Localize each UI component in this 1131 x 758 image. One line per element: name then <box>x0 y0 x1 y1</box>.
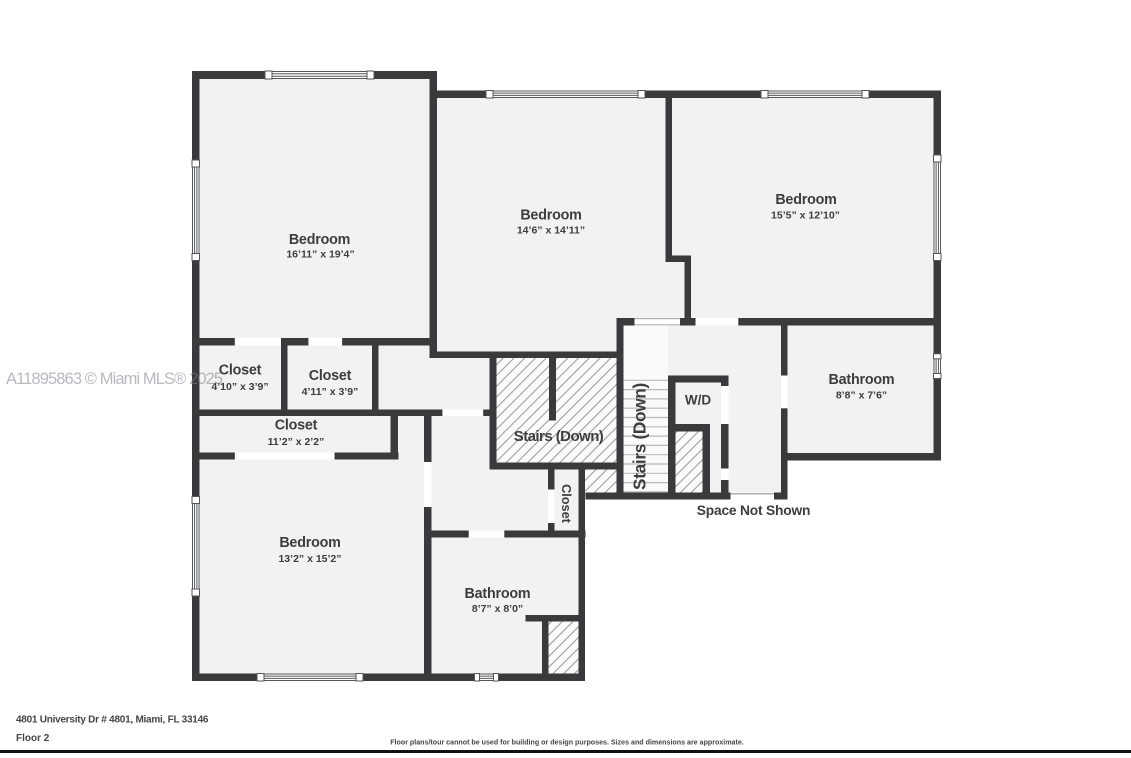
svg-text:11’2” x 2’2”: 11’2” x 2’2” <box>268 436 325 448</box>
svg-text:15’5” x 12’10”: 15’5” x 12’10” <box>771 210 840 222</box>
svg-text:A11895863 © Miami MLS® 2025: A11895863 © Miami MLS® 2025 <box>6 370 223 388</box>
svg-text:16’11” x 19’4”: 16’11” x 19’4” <box>286 249 354 261</box>
svg-text:Floor plans/tour cannot be use: Floor plans/tour cannot be used for buil… <box>390 739 744 747</box>
svg-text:14’6” x 14’11”: 14’6” x 14’11” <box>517 225 585 237</box>
svg-text:Closet: Closet <box>275 418 318 434</box>
svg-text:Bedroom: Bedroom <box>289 232 350 248</box>
svg-text:4801 University Dr # 4801, Mia: 4801 University Dr # 4801, Miami, FL 331… <box>16 715 209 726</box>
svg-text:Closet: Closet <box>219 363 262 379</box>
svg-text:4’11” x 3’9”: 4’11” x 3’9” <box>302 386 359 398</box>
svg-text:Bedroom: Bedroom <box>520 208 581 224</box>
svg-text:Bedroom: Bedroom <box>775 192 836 208</box>
svg-text:Stairs (Down): Stairs (Down) <box>630 383 650 490</box>
svg-text:Space Not Shown: Space Not Shown <box>697 503 811 518</box>
svg-text:Bedroom: Bedroom <box>279 535 340 551</box>
svg-text:Floor 2: Floor 2 <box>16 733 50 744</box>
svg-text:W/D: W/D <box>685 393 711 408</box>
svg-text:Stairs (Down): Stairs (Down) <box>514 428 604 445</box>
svg-text:Bathroom: Bathroom <box>829 372 895 388</box>
svg-text:8’8” x 7’6”: 8’8” x 7’6” <box>836 390 887 402</box>
svg-text:8’7” x 8’0”: 8’7” x 8’0” <box>472 603 523 615</box>
svg-text:Closet: Closet <box>559 484 573 524</box>
svg-text:Closet: Closet <box>309 368 352 384</box>
svg-text:13’2” x 15’2”: 13’2” x 15’2” <box>278 553 341 565</box>
svg-text:Bathroom: Bathroom <box>465 586 531 602</box>
